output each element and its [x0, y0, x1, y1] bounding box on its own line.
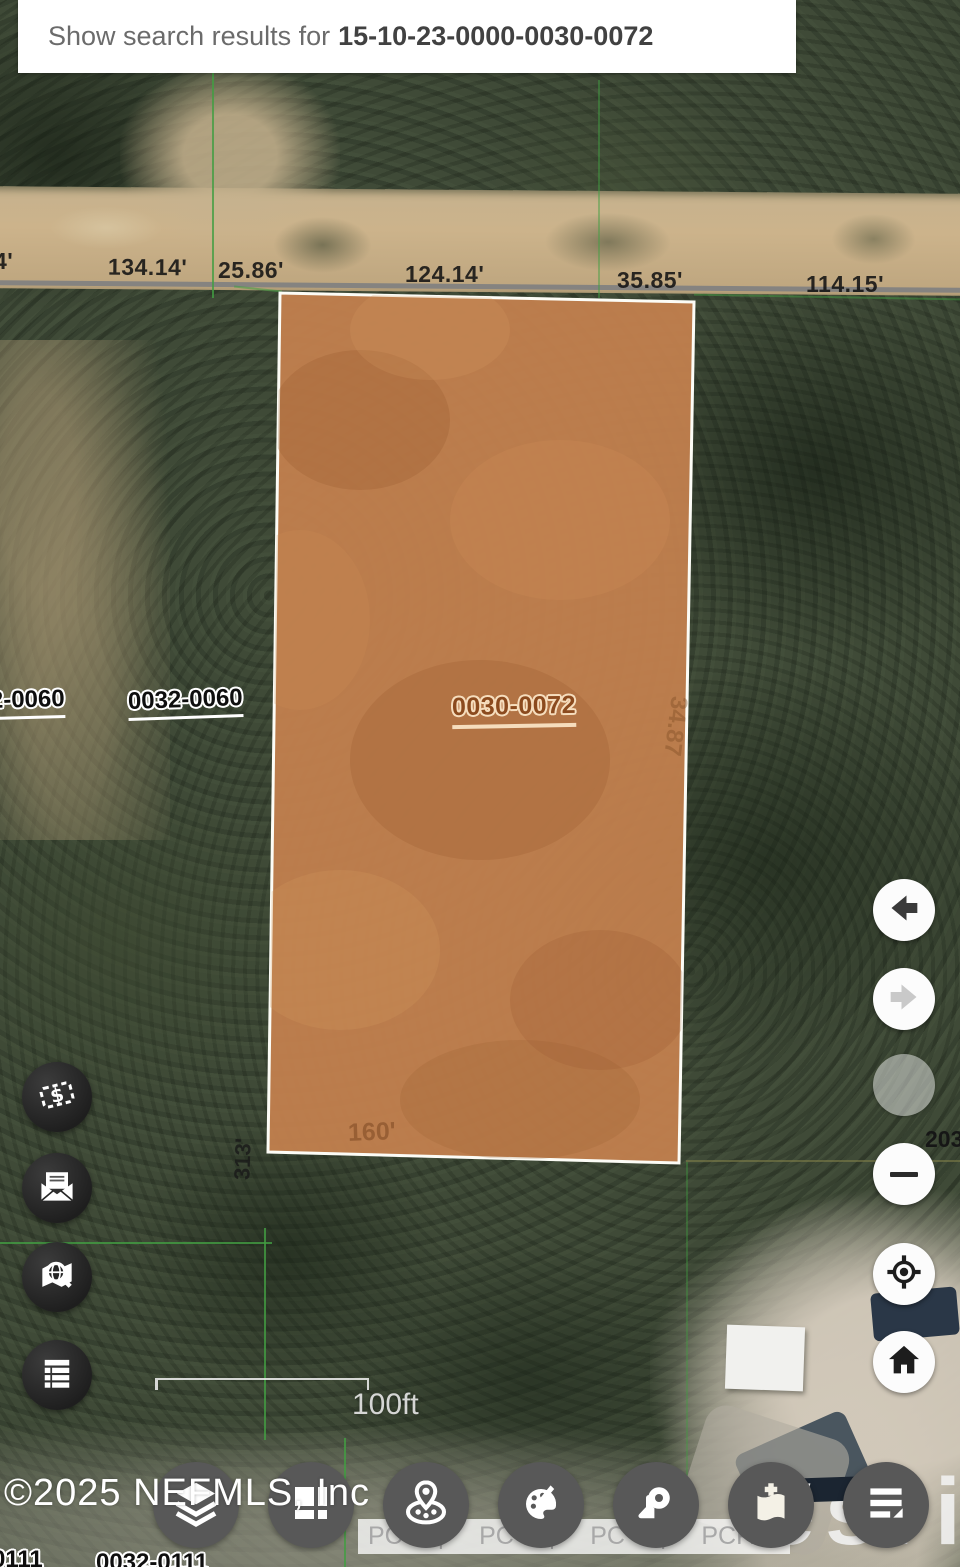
minus-icon [890, 1172, 918, 1177]
map-pin-group-icon [399, 1476, 453, 1535]
back-button[interactable] [873, 879, 935, 941]
boundary-dimension: 313' [229, 1124, 257, 1195]
road-dimension-label: 124.14' [405, 261, 484, 288]
legend-list-icon [861, 1478, 911, 1533]
map-search-button[interactable] [22, 1242, 92, 1312]
road-dimension-label: 114.15' [806, 271, 884, 298]
price-tag-dollar-icon: $ [36, 1074, 78, 1121]
results-list-button[interactable] [22, 1340, 92, 1410]
dimension-label-partial: 203 [925, 1126, 960, 1155]
parcel-number-label: 0032-0060 [127, 684, 243, 721]
selected-parcel-polygon[interactable] [0, 0, 960, 1567]
svg-text:$: $ [48, 1082, 67, 1108]
map-canvas[interactable]: 4' 134.14' 25.86' 124.14' 35.85' 114.15'… [0, 0, 960, 1567]
bookmarks-button[interactable] [728, 1462, 814, 1548]
measure-button[interactable] [613, 1462, 699, 1548]
measure-tape-icon [632, 1479, 680, 1532]
selected-parcel-number-label: 0030-0072 [452, 691, 577, 729]
zoom-out-button[interactable] [873, 1143, 935, 1205]
road-dimension-label: 4' [0, 248, 13, 275]
my-location-button[interactable] [873, 1243, 935, 1305]
parcel-bottom-dimension: 160' [348, 1117, 397, 1148]
forward-arrow-icon [884, 977, 924, 1022]
mailing-labels-button[interactable] [22, 1153, 92, 1223]
map-search-icon [35, 1253, 79, 1302]
layers-button[interactable] [153, 1462, 239, 1548]
legend-button[interactable] [843, 1462, 929, 1548]
parcel-number-label: 0032-0111 [96, 1549, 208, 1567]
theme-button[interactable] [498, 1462, 584, 1548]
locations-button[interactable] [383, 1462, 469, 1548]
mail-envelope-icon [35, 1164, 79, 1213]
map-app: 4' 134.14' 25.86' 124.14' 35.85' 114.15'… [0, 0, 960, 1567]
road-dimension-label: 25.86' [218, 257, 284, 284]
banner-parcel-id: 15-10-23-0000-0030-0072 [338, 21, 653, 52]
parcel-number-label: 0111 [0, 1546, 43, 1567]
home-icon [884, 1340, 924, 1385]
scale-bar-label: 100ft [352, 1388, 419, 1422]
crosshair-locate-icon [883, 1251, 925, 1298]
scale-bar [155, 1378, 369, 1392]
road-dimension-label: 134.14' [108, 254, 188, 282]
palette-icon [517, 1479, 565, 1532]
banner-prefix: Show search results for [48, 21, 330, 52]
basemap-button[interactable] [268, 1462, 354, 1548]
forward-button[interactable] [873, 968, 935, 1030]
parcel-number-label: 2-0060 [0, 685, 65, 720]
layers-icon [169, 1476, 223, 1535]
road-dimension-label: 35.85' [617, 267, 683, 294]
table-list-icon [36, 1352, 78, 1399]
home-extent-button[interactable] [873, 1331, 935, 1393]
sales-button[interactable]: $ [22, 1062, 92, 1132]
back-arrow-icon [884, 888, 924, 933]
search-results-banner[interactable]: Show search results for 15-10-23-0000-00… [18, 0, 796, 73]
basemap-grid-icon [287, 1479, 335, 1532]
flag-add-icon [746, 1478, 796, 1533]
zoom-in-button[interactable] [873, 1054, 935, 1116]
